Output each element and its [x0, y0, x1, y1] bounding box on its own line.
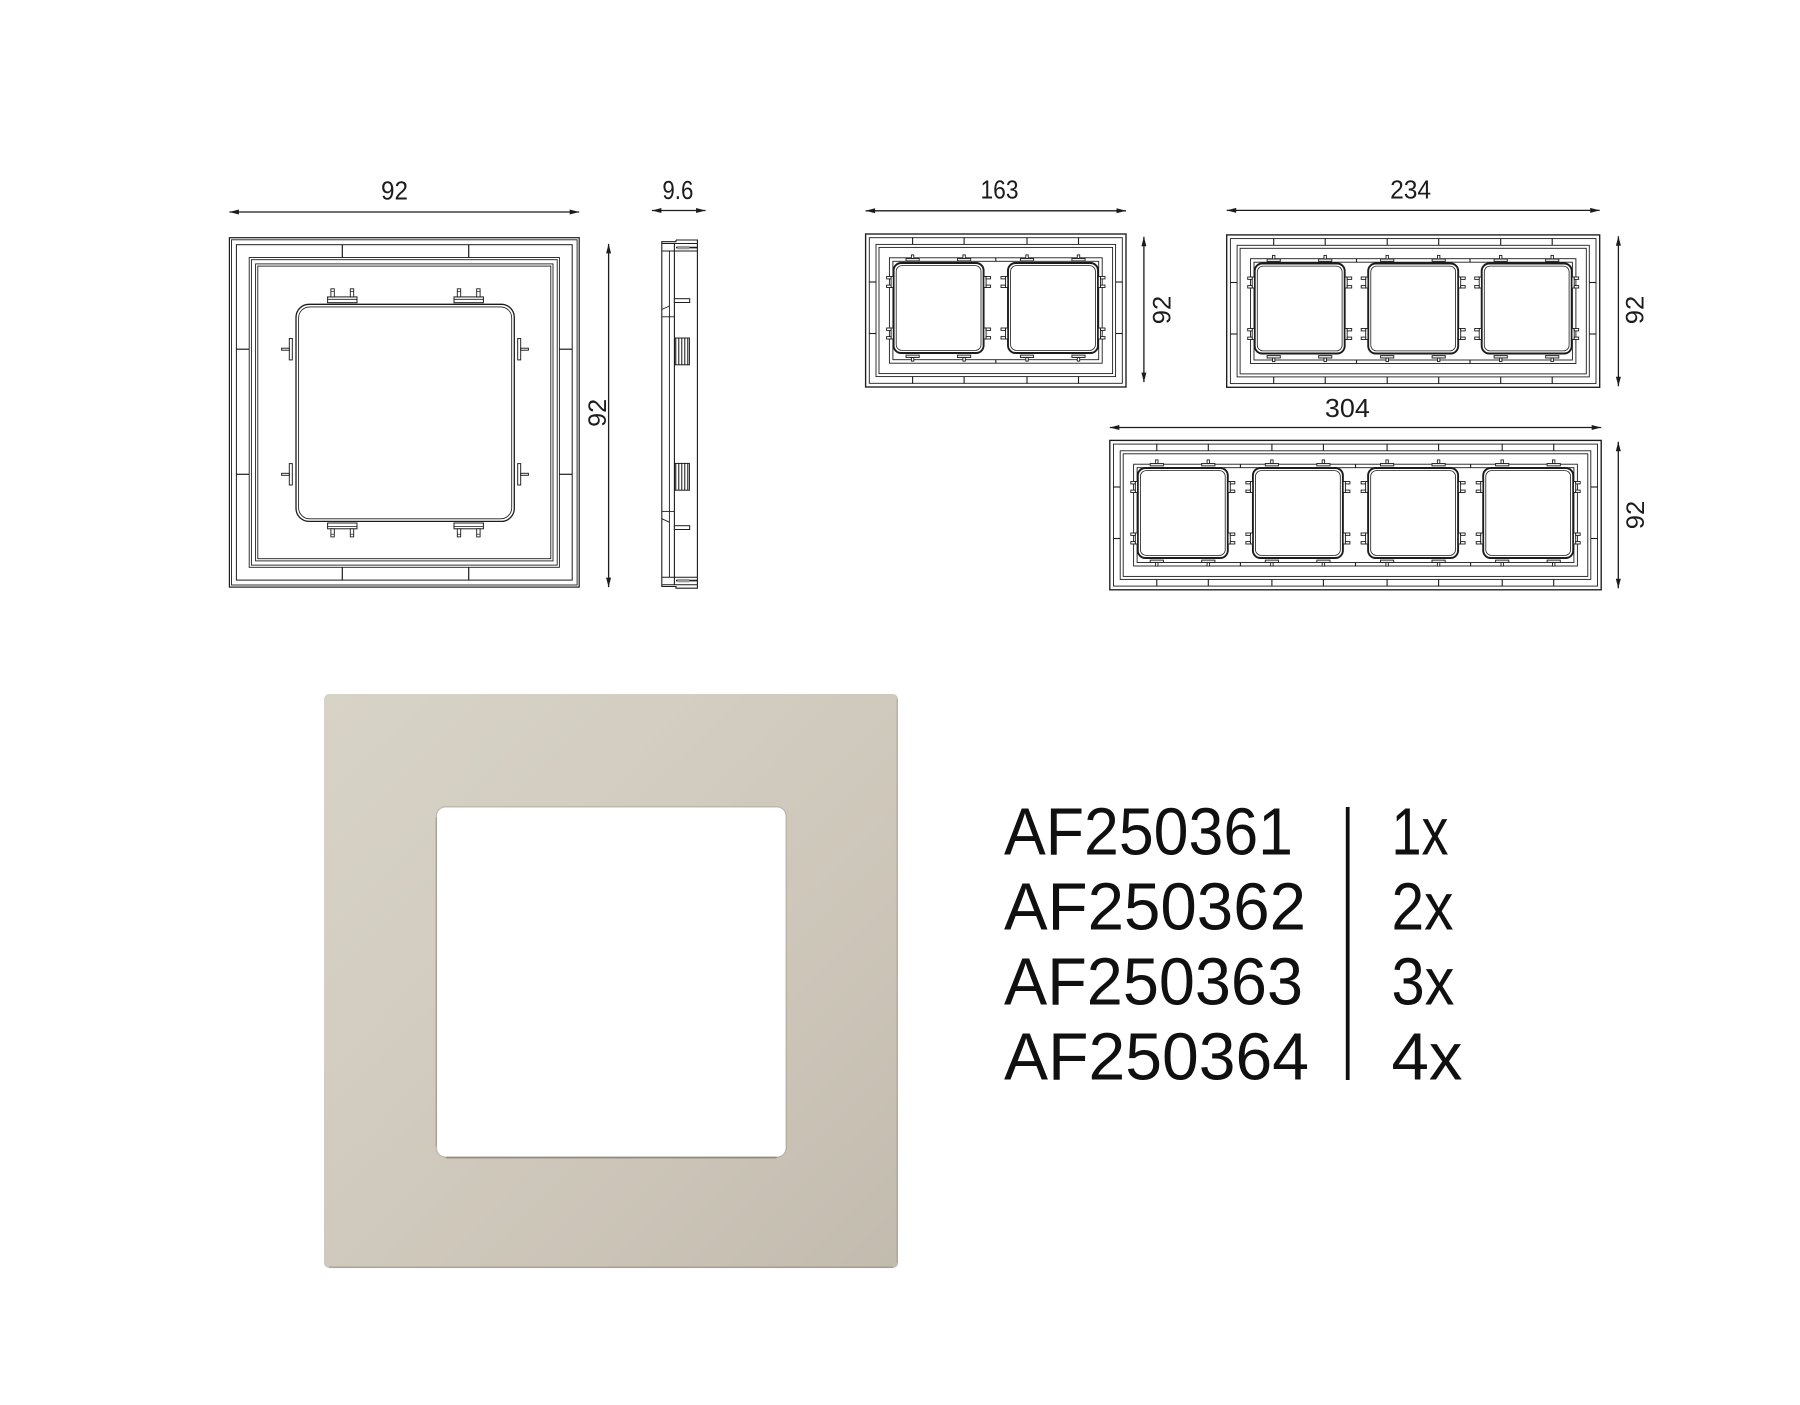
- svg-text:4x: 4x: [1392, 1021, 1463, 1095]
- svg-text:92: 92: [1622, 501, 1650, 530]
- svg-text:234: 234: [1390, 177, 1431, 205]
- svg-text:1x: 1x: [1392, 796, 1449, 870]
- svg-text:92: 92: [1621, 296, 1649, 325]
- svg-text:9.6: 9.6: [662, 177, 693, 205]
- svg-text:AF250363: AF250363: [1004, 946, 1303, 1020]
- svg-text:2x: 2x: [1392, 871, 1454, 945]
- svg-text:AF250362: AF250362: [1004, 871, 1306, 945]
- svg-text:92: 92: [584, 399, 612, 427]
- svg-text:AF250361: AF250361: [1004, 796, 1293, 870]
- svg-text:AF250364: AF250364: [1004, 1021, 1309, 1095]
- svg-text:3x: 3x: [1392, 946, 1455, 1020]
- svg-text:92: 92: [1148, 296, 1176, 325]
- svg-text:92: 92: [381, 177, 408, 205]
- svg-text:304: 304: [1325, 395, 1370, 423]
- svg-text:163: 163: [981, 177, 1019, 205]
